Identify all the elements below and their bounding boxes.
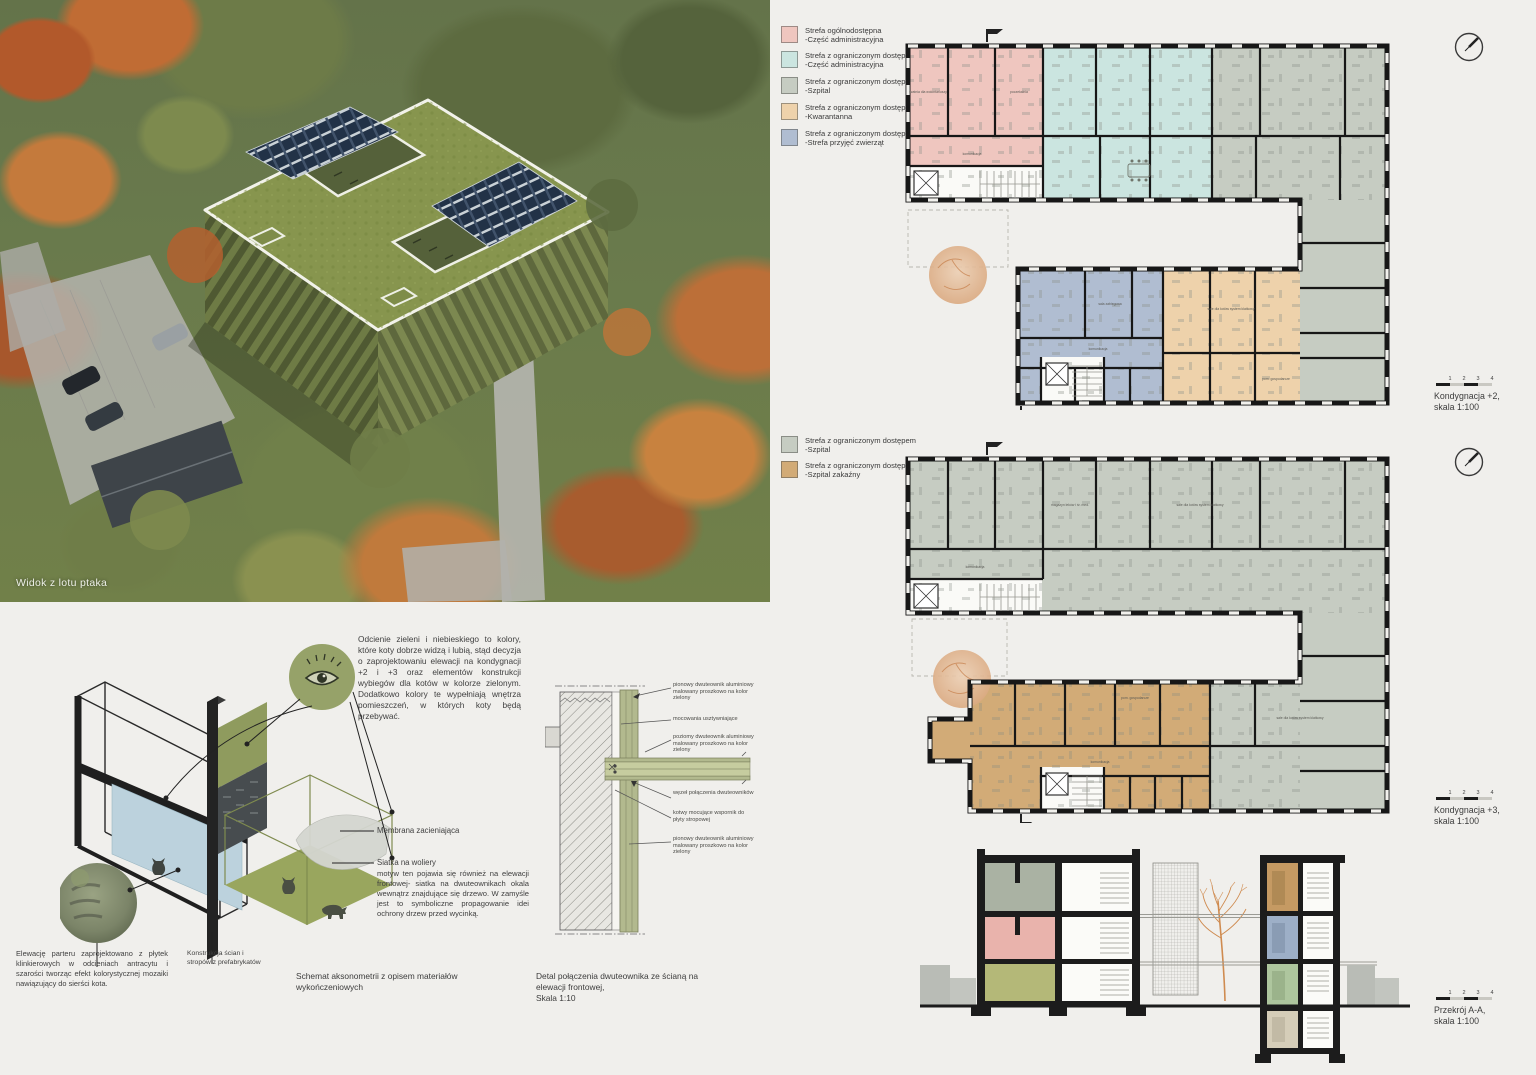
legend-swatch bbox=[781, 77, 798, 94]
legend-item: Strefa z ograniczonym dostępem-Część adm… bbox=[781, 51, 916, 69]
scale-bar: 1 2 3 4 bbox=[1434, 988, 1500, 1004]
legend-swatch bbox=[781, 26, 798, 43]
scale-bar: 1 2 3 4 bbox=[1434, 788, 1500, 804]
legend-item: Strefa z ograniczonym dostępem-Kwarantan… bbox=[781, 103, 916, 121]
svg-text:4: 4 bbox=[1490, 990, 1493, 996]
detail-drawing bbox=[545, 672, 755, 940]
svg-text:pom. gospodarcze: pom. gospodarcze bbox=[1262, 377, 1290, 381]
plan2-caption: Kondygnacja +2, skala 1:100 bbox=[1434, 391, 1500, 413]
tree-sketch bbox=[933, 650, 991, 708]
svg-text:komunikacja: komunikacja bbox=[963, 152, 982, 156]
scale-bar: 1 2 3 4 bbox=[1434, 374, 1500, 390]
legend-item: Strefa z ograniczonym dostępem-Strefa pr… bbox=[781, 129, 916, 147]
svg-text:2: 2 bbox=[1462, 790, 1465, 796]
detail-vertical-beam bbox=[620, 690, 638, 932]
plan3-zones bbox=[908, 459, 1387, 811]
detail-label: pionowy dwuteownik aluminiowy malowany p… bbox=[673, 836, 755, 856]
detail-label: kotwy mocujące wspornik do płyty stropow… bbox=[673, 810, 755, 823]
svg-text:1: 1 bbox=[1448, 376, 1451, 382]
detail-label: poziomy dwuteownik aluminiowy malowany p… bbox=[673, 734, 755, 754]
svg-text:komunikacja: komunikacja bbox=[1091, 760, 1110, 764]
north-indicator bbox=[1452, 30, 1486, 64]
svg-text:szatnia dla wolontariuszy: szatnia dla wolontariuszy bbox=[909, 90, 947, 94]
section-drawing bbox=[915, 843, 1440, 1075]
legend-swatch bbox=[781, 461, 798, 478]
svg-text:4: 4 bbox=[1490, 376, 1493, 382]
section-tree bbox=[1198, 879, 1247, 1001]
floor-plan-plus2: komunikacja poczekalnia szatnia dla wolo… bbox=[900, 24, 1392, 410]
detail-caption: Detal połączenia dwuteownika ze ścianą n… bbox=[536, 971, 706, 1004]
svg-text:poczekalnia: poczekalnia bbox=[1010, 90, 1028, 94]
svg-text:3: 3 bbox=[1476, 990, 1479, 996]
north-indicator bbox=[1452, 445, 1486, 479]
color-concept-paragraph: Odcienie zieleni i niebieskiego to kolor… bbox=[358, 634, 521, 722]
legend-item: Strefa ogólnodostępna-Część administracy… bbox=[781, 26, 884, 44]
detail-wall bbox=[545, 692, 620, 930]
building bbox=[188, 100, 608, 472]
plan2-zones bbox=[908, 46, 1387, 403]
membrane-label: Membrana zacieniająca bbox=[377, 826, 532, 835]
svg-text:sale dla kotów system klatkowy: sale dla kotów system klatkowy bbox=[1276, 716, 1323, 720]
aerial-render: Widok z lotu ptaka bbox=[0, 0, 770, 602]
cat-photo bbox=[60, 863, 137, 943]
mesh-label-title: Siatka na woliery bbox=[377, 858, 532, 867]
axon-central-wall bbox=[207, 696, 267, 960]
mesh-label-body: motyw ten pojawia się również na elewacj… bbox=[377, 869, 529, 919]
detail-label: mocowania usztywniające bbox=[673, 716, 755, 723]
facade-caption: Elewację parteru zaprojektowano z płytek… bbox=[16, 949, 168, 989]
detail-label: węzeł połączenia dwuteowników bbox=[673, 790, 755, 797]
legend-swatch bbox=[781, 436, 798, 453]
section-right-tower bbox=[1255, 855, 1345, 1063]
svg-text:komunikacja: komunikacja bbox=[966, 565, 985, 569]
tree-sketch bbox=[929, 246, 987, 304]
svg-text:1: 1 bbox=[1448, 790, 1451, 796]
section-left-block bbox=[971, 849, 1146, 1016]
legend-item: Strefa z ograniczonym dostępem-Szpital bbox=[781, 436, 916, 454]
svg-text:pom. gospodarcze: pom. gospodarcze bbox=[1121, 696, 1149, 700]
legend-label: Strefa ogólnodostępna bbox=[805, 26, 881, 35]
svg-text:sala zabiegowa: sala zabiegowa bbox=[1098, 302, 1121, 306]
detail-label: pionowy dwuteownik aluminiowy malowany p… bbox=[673, 682, 755, 702]
svg-text:sale dla kotów system klatkowy: sale dla kotów system klatkowy bbox=[1176, 503, 1223, 507]
plan3-caption: Kondygnacja +3, skala 1:100 bbox=[1434, 805, 1500, 827]
section-caption: Przekrój A-A, skala 1:100 bbox=[1434, 1005, 1485, 1027]
render-caption: Widok z lotu ptaka bbox=[16, 577, 107, 589]
legend-item: Strefa z ograniczonym dostępem-Szpital bbox=[781, 77, 916, 95]
floor-plan-plus3: komunikacja sale dla kotów system klatko… bbox=[900, 437, 1392, 823]
svg-text:3: 3 bbox=[1476, 790, 1479, 796]
svg-text:4: 4 bbox=[1490, 790, 1493, 796]
presentation-board: Widok z lotu ptaka Strefa ogólnodostępna… bbox=[0, 0, 1536, 1075]
svg-text:2: 2 bbox=[1462, 990, 1465, 996]
svg-text:1: 1 bbox=[1448, 990, 1451, 996]
svg-text:komunikacja: komunikacja bbox=[1089, 347, 1108, 351]
aerial-render-drawing bbox=[0, 0, 770, 602]
legend-swatch bbox=[781, 103, 798, 120]
structure-caption: Konstrukcja ścian i stropów z prefabryka… bbox=[187, 949, 267, 967]
axonometric-diagram bbox=[60, 632, 400, 972]
svg-text:magazyn leków i śr. med.: magazyn leków i śr. med. bbox=[1051, 503, 1089, 507]
axon-title: Schemat aksonometrii z opisem materiałów… bbox=[296, 971, 461, 993]
svg-text:sale dla kotów system klatkowy: sale dla kotów system klatkowy bbox=[1207, 307, 1254, 311]
plan2-courtyard bbox=[908, 210, 1008, 304]
svg-text:3: 3 bbox=[1476, 376, 1479, 382]
section-mesh-net bbox=[1153, 863, 1198, 995]
svg-text:2: 2 bbox=[1462, 376, 1465, 382]
legend-item: Strefa z ograniczonym dostępem-Szpital z… bbox=[781, 461, 916, 479]
legend-swatch bbox=[781, 51, 798, 68]
legend-swatch bbox=[781, 129, 798, 146]
